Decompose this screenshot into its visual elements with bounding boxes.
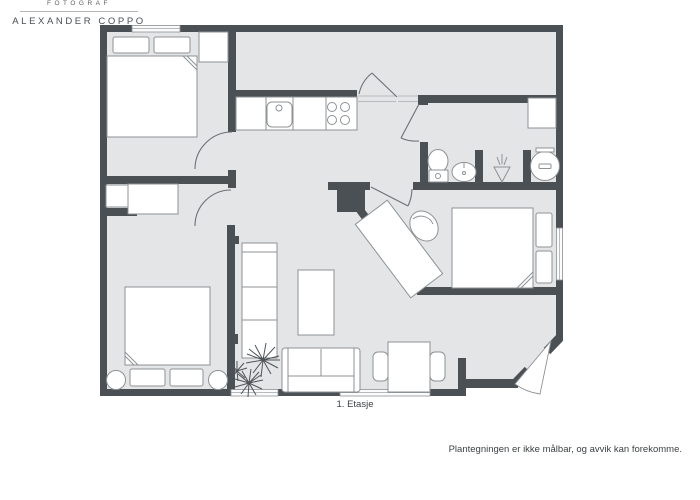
kitchen-sink xyxy=(267,102,292,127)
desk-small xyxy=(128,184,178,214)
wardrobe xyxy=(199,32,228,62)
dining-table xyxy=(388,342,430,392)
dining-chair xyxy=(430,352,445,381)
floor-label: 1. Etasje xyxy=(280,399,430,410)
bathroom-cabinet xyxy=(528,98,556,128)
floor-plan-drawing xyxy=(0,0,700,500)
closet-niche xyxy=(106,185,128,207)
sofa xyxy=(282,348,360,392)
floor-plan-page: 1. Etasje Plantegningen er ikke målbar, … xyxy=(0,0,700,500)
disclaimer-text: Plantegningen er ikke målbar, og avvik k… xyxy=(449,444,682,455)
bedside-table xyxy=(107,371,126,390)
coffee-table xyxy=(298,270,334,335)
kitchen-counter xyxy=(236,97,357,130)
bookshelf xyxy=(242,243,277,358)
dining-chair xyxy=(373,352,388,381)
washbasin xyxy=(452,163,476,182)
toilet xyxy=(428,150,448,183)
bedside-table xyxy=(209,371,228,390)
